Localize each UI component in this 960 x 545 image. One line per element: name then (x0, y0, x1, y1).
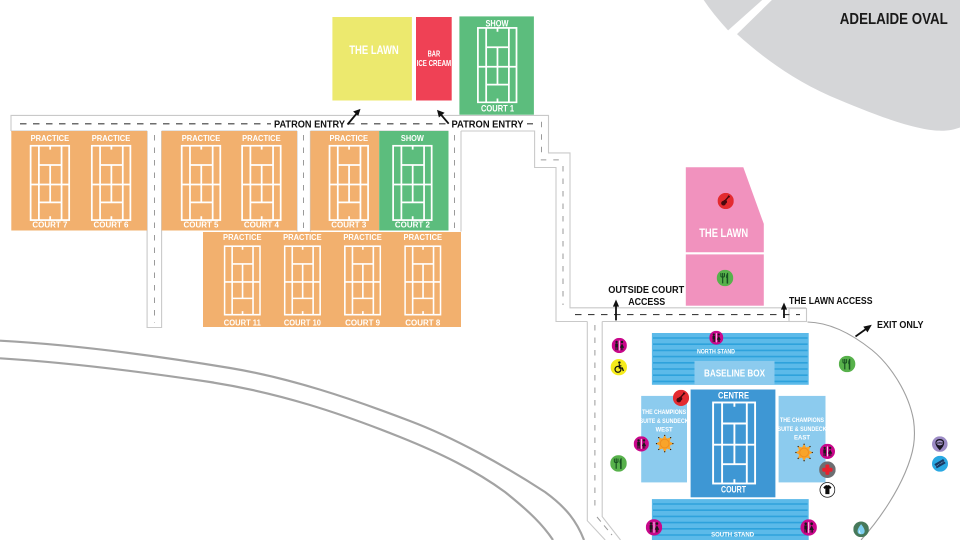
svg-text:COURT 7: COURT 7 (32, 220, 67, 230)
svg-text:COURT 5: COURT 5 (184, 220, 219, 230)
svg-text:NORTH STAND: NORTH STAND (697, 349, 735, 356)
svg-text:THE LAWN: THE LAWN (349, 43, 399, 57)
svg-text:THE CHAMPIONS: THE CHAMPIONS (780, 417, 824, 424)
svg-text:PRACTICE: PRACTICE (242, 133, 281, 143)
svg-text:EXIT ONLY: EXIT ONLY (877, 319, 924, 331)
svg-text:PRACTICE: PRACTICE (31, 133, 70, 143)
svg-text:COURT 9: COURT 9 (345, 318, 380, 328)
svg-text:PATRON ENTRY: PATRON ENTRY (274, 118, 345, 130)
svg-text:SHOW: SHOW (486, 18, 509, 29)
svg-text:THE CHAMPIONS: THE CHAMPIONS (642, 409, 686, 416)
svg-text:COURT 2: COURT 2 (395, 220, 430, 230)
svg-text:PRACTICE: PRACTICE (182, 133, 221, 143)
svg-text:COURT 3: COURT 3 (331, 220, 366, 230)
svg-text:CENTRE: CENTRE (718, 390, 749, 401)
svg-text:PRACTICE: PRACTICE (283, 232, 322, 242)
svg-text:ACCESS: ACCESS (628, 297, 665, 308)
svg-text:EAST: EAST (794, 435, 810, 442)
svg-text:COURT 8: COURT 8 (405, 318, 440, 328)
svg-text:COURT 10: COURT 10 (284, 318, 321, 328)
svg-text:COURT 11: COURT 11 (224, 318, 261, 328)
svg-text:PRACTICE: PRACTICE (92, 133, 131, 143)
svg-text:THE LAWN ACCESS: THE LAWN ACCESS (789, 295, 873, 307)
svg-text:COURT 4: COURT 4 (244, 220, 279, 230)
svg-text:PRACTICE: PRACTICE (330, 133, 369, 143)
svg-text:PRACTICE: PRACTICE (404, 232, 443, 242)
svg-text:COURT 6: COURT 6 (94, 220, 129, 230)
svg-text:BAR: BAR (428, 49, 441, 59)
svg-text:SOUTH STAND: SOUTH STAND (711, 531, 754, 538)
svg-text:PRACTICE: PRACTICE (343, 232, 382, 242)
svg-text:PRACTICE: PRACTICE (223, 232, 262, 242)
svg-text:ADELAIDE OVAL: ADELAIDE OVAL (840, 11, 948, 28)
svg-text:ICE CREAM: ICE CREAM (417, 58, 452, 68)
svg-text:PATRON ENTRY: PATRON ENTRY (452, 118, 524, 130)
svg-text:COURT: COURT (721, 484, 746, 495)
svg-text:SUITE & SUNDECK: SUITE & SUNDECK (640, 418, 689, 425)
svg-text:BASELINE BOX: BASELINE BOX (704, 368, 765, 380)
svg-text:SUITE & SUNDECK: SUITE & SUNDECK (778, 426, 827, 433)
svg-text:SHOW: SHOW (401, 133, 425, 143)
svg-text:WEST: WEST (656, 427, 673, 434)
svg-text:THE LAWN: THE LAWN (699, 228, 748, 240)
svg-text:OUTSIDE COURT: OUTSIDE COURT (608, 285, 684, 296)
svg-text:COURT 1: COURT 1 (481, 104, 515, 115)
